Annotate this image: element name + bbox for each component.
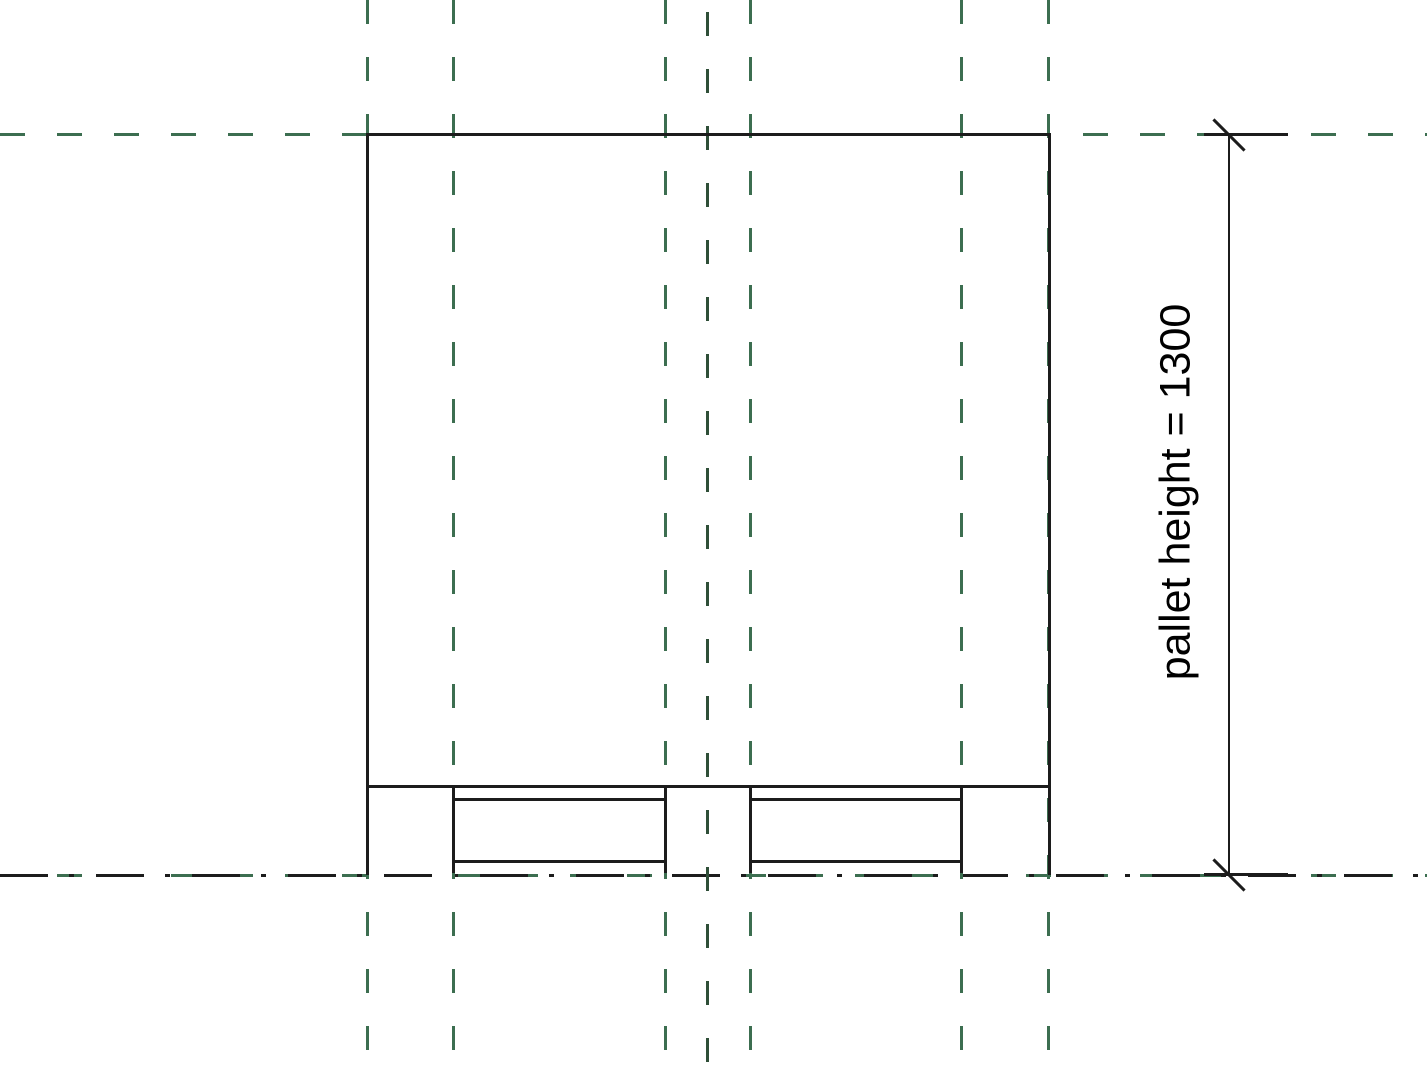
reference-plane-vertical-2[interactable] <box>452 0 455 1080</box>
pallet-deck-bottom-edge <box>366 785 1051 788</box>
foot-right-top-edge <box>749 798 963 801</box>
centerline-vertical-axis[interactable] <box>706 0 709 1080</box>
pallet-left-edge <box>366 133 369 875</box>
reference-plane-vertical-5[interactable] <box>960 0 963 1080</box>
reference-plane-vertical-3[interactable] <box>664 0 667 1080</box>
dimension-witness-line-bottom <box>1204 873 1288 876</box>
dimension-label[interactable]: pallet height = 1300 <box>1152 304 1201 681</box>
dimension-line <box>1228 135 1230 875</box>
foot-right-bottom-edge <box>749 860 963 863</box>
foot-left-bottom-edge <box>452 860 667 863</box>
pallet-right-edge <box>1048 133 1051 875</box>
reference-plane-vertical-4[interactable] <box>749 0 752 1080</box>
dimension-witness-line-top <box>1204 133 1288 136</box>
foot-left-top-edge <box>452 798 667 801</box>
pallet-top-edge <box>366 133 1051 136</box>
drawing-canvas: pallet height = 1300 <box>0 0 1427 1080</box>
